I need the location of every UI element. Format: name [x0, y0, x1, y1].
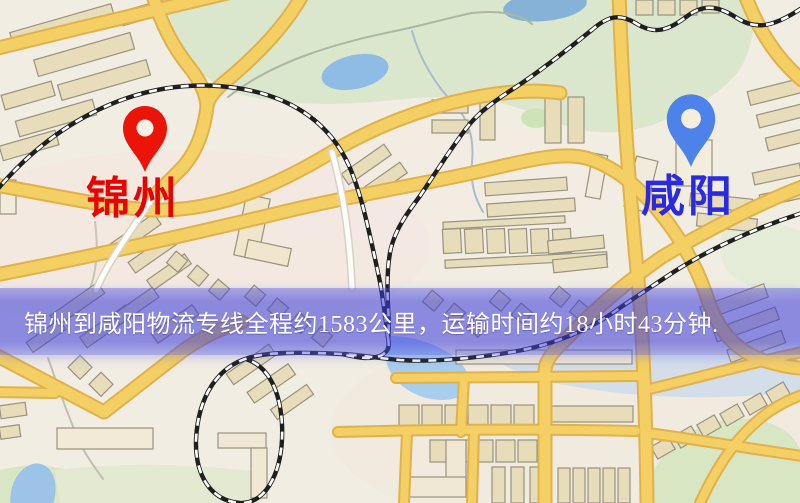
- route-info-text: 锦州到咸阳物流专线全程约1583公里，运输时间约18小时43分钟.: [24, 304, 719, 339]
- route-info-banner: 锦州到咸阳物流专线全程约1583公里，运输时间约18小时43分钟.: [0, 288, 800, 355]
- map-image: 锦州 咸阳 锦州到咸阳物流专线全程约1583公里，运输时间约18小时43分钟.: [0, 0, 800, 503]
- map-canvas[interactable]: [0, 0, 800, 503]
